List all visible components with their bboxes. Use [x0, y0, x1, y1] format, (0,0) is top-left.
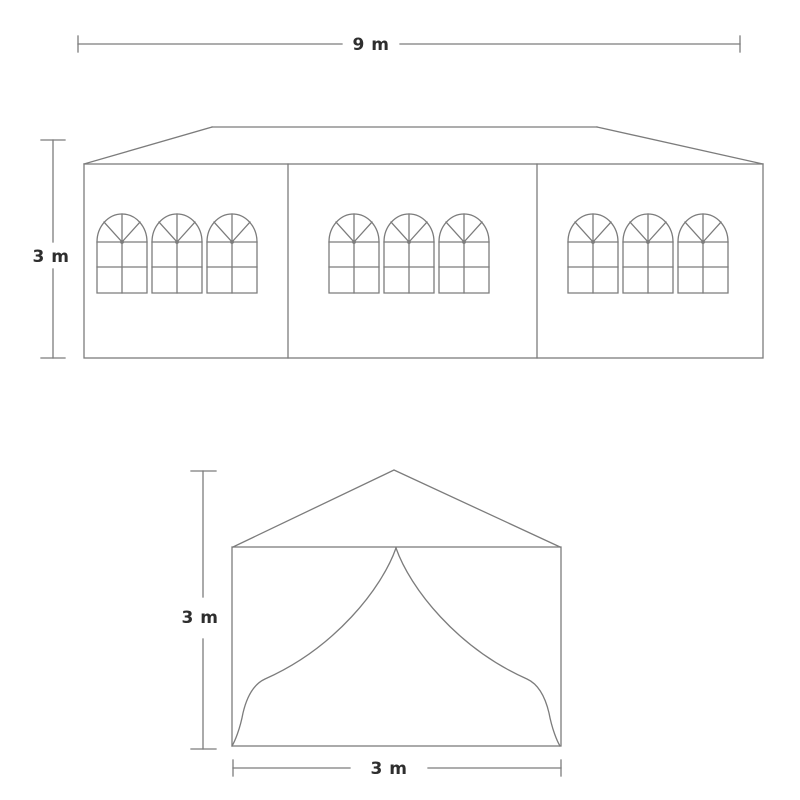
arched-window — [623, 214, 673, 293]
tent-diagram-svg: 9 m 3 m — [0, 0, 800, 800]
side-height-dimension: 3 m — [33, 140, 70, 358]
front-view: 3 m 3 m — [182, 470, 561, 779]
curtain-right — [396, 548, 560, 746]
curtain-left — [232, 548, 396, 746]
arched-window — [439, 214, 489, 293]
roof-gable — [233, 470, 560, 547]
front-wall — [232, 547, 561, 746]
side-view: 9 m 3 m — [33, 35, 763, 358]
side-windows — [97, 214, 728, 293]
front-width-dimension: 3 m — [233, 759, 561, 779]
arched-window — [97, 214, 147, 293]
front-width-label: 3 m — [371, 759, 408, 779]
roof-slope-right — [597, 127, 763, 164]
front-height-label: 3 m — [182, 608, 219, 628]
arched-window — [678, 214, 728, 293]
side-height-label: 3 m — [33, 247, 70, 267]
arched-window — [329, 214, 379, 293]
front-height-dimension: 3 m — [182, 471, 219, 749]
arched-window — [568, 214, 618, 293]
side-width-dimension: 9 m — [78, 35, 740, 55]
arched-window — [152, 214, 202, 293]
side-wall — [84, 164, 763, 358]
arched-window — [384, 214, 434, 293]
front-outline — [232, 470, 561, 746]
tent-diagram: 9 m 3 m — [0, 0, 800, 800]
side-width-label: 9 m — [353, 35, 390, 55]
arched-window — [207, 214, 257, 293]
roof-slope-left — [84, 127, 212, 164]
